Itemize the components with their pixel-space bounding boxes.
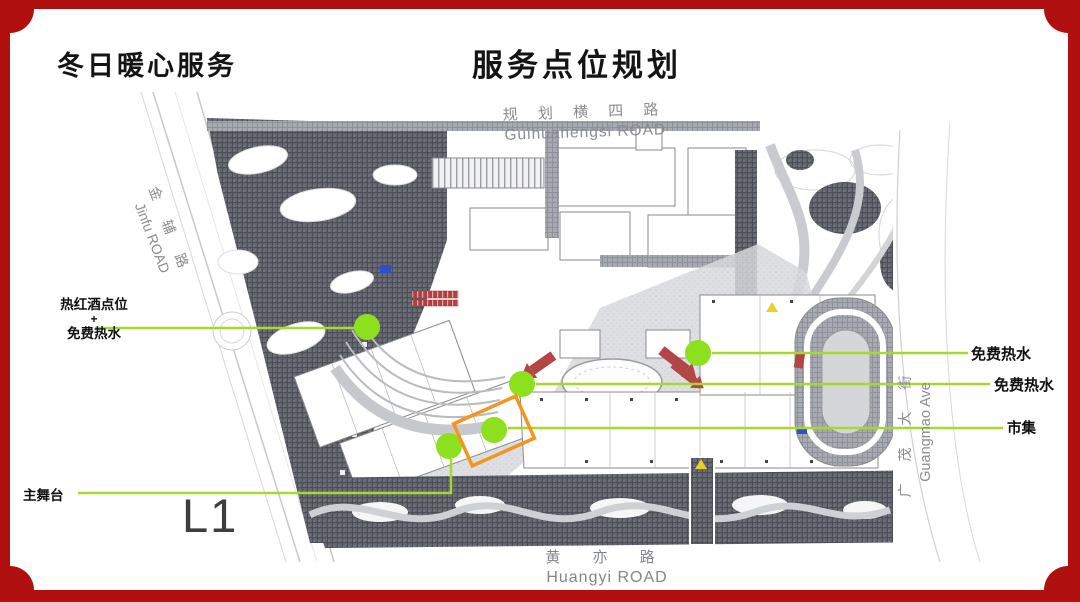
page-subtitle: 冬日暖心服务 xyxy=(57,44,237,83)
frame-right-bar xyxy=(1068,0,1080,602)
top-sidewalk xyxy=(207,121,760,131)
floor-level-label: L1 xyxy=(182,488,238,543)
road-label-top-cn: 规 划 横 四 路 xyxy=(502,101,666,124)
callout-market: 市集 xyxy=(1007,417,1036,438)
road-label-right-cn: 广 茂 大 街 xyxy=(897,367,913,498)
marker-hotwater2-dot xyxy=(509,371,535,397)
callout-main-stage: 主舞台 xyxy=(23,484,64,504)
frame-left-bar xyxy=(0,0,10,602)
marker-wine-point-dot xyxy=(354,314,380,340)
blue-marker xyxy=(380,265,391,273)
frame-top-bar xyxy=(0,0,1080,9)
escalator-red-bar xyxy=(412,300,458,306)
callout-wine-line2: + xyxy=(18,313,170,326)
callout-wine-line1: 热红酒点位 xyxy=(18,297,170,313)
east-bus-loop xyxy=(795,298,895,466)
marker-hotwater1-dot xyxy=(685,340,711,366)
frame-bottom-bar xyxy=(0,590,1080,602)
callout-hot-water-2: 免费热水 xyxy=(994,374,1054,395)
marker-market-dot xyxy=(481,417,507,443)
road-label-bottom: 黄 亦 路 Huangyi ROAD xyxy=(545,549,668,586)
callout-hot-water-1: 免费热水 xyxy=(971,343,1031,364)
slide: { "titles": { "left": "冬日暖心服务", "center"… xyxy=(0,0,1080,602)
road-label-right-en: Guangmao Ave xyxy=(918,382,934,482)
road-label-bottom-en: Huangyi ROAD xyxy=(546,569,667,586)
callout-wine-point: 热红酒点位 + 免费热水 xyxy=(18,297,170,343)
callout-wine-line3: 免费热水 xyxy=(18,326,170,342)
page-title: 服务点位规划 xyxy=(472,40,682,85)
road-label-bottom-cn: 黄 亦 路 xyxy=(545,549,668,566)
escalator-red-bar xyxy=(412,291,458,298)
